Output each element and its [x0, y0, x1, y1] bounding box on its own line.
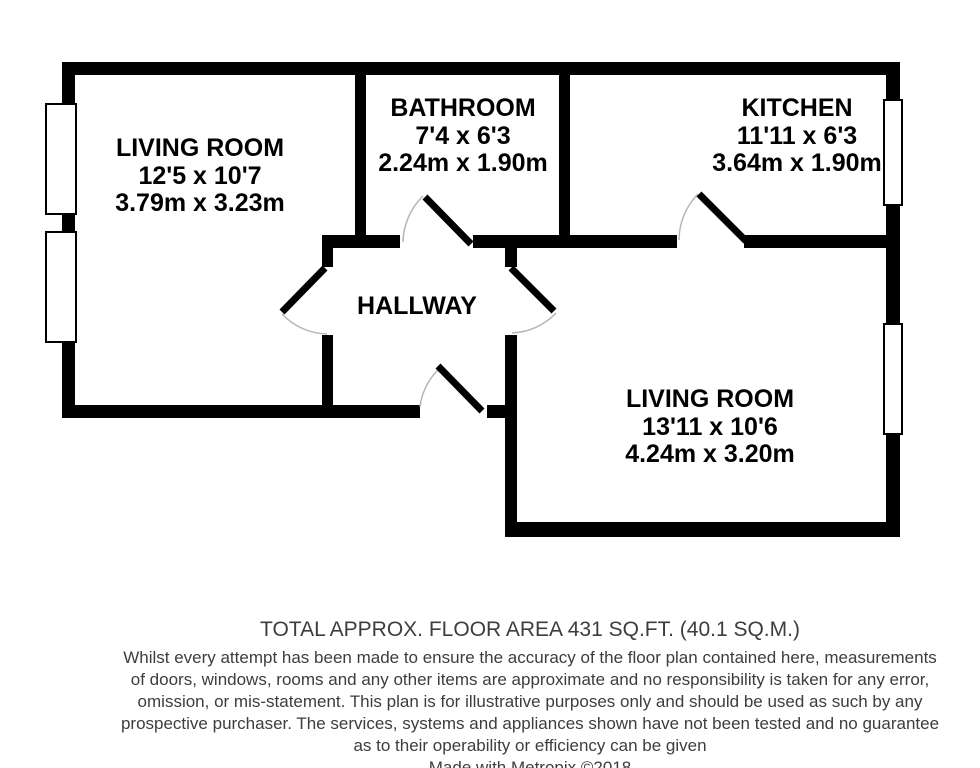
door-leaf-living1 [282, 268, 325, 312]
window-living1-upper [46, 104, 76, 214]
wall-hallway-left-lower [322, 335, 333, 411]
wall-living1-bottom [62, 405, 420, 418]
wall-hallway-left-upper [322, 235, 333, 267]
door-arcs [282, 194, 698, 407]
door-leaf-bathroom [425, 197, 471, 244]
room-dims-imperial: 7'4 x 6'3 [415, 122, 510, 150]
floor-plan-drawing: LIVING ROOM 12'5 x 10'7 3.79m x 3.23m BA… [0, 0, 980, 580]
door-arc-living1 [282, 314, 327, 334]
floor-plan-page: LIVING ROOM 12'5 x 10'7 3.79m x 3.23m BA… [0, 0, 980, 768]
door-arc-bathroom [403, 196, 423, 242]
room-label-living-room-2: LIVING ROOM 13'11 x 10'6 4.24m x 3.20m [625, 385, 795, 468]
room-label-hallway: HALLWAY [357, 292, 477, 320]
door-arc-kitchen [679, 194, 698, 240]
disclaimer: Whilst every attempt has been made to en… [60, 647, 980, 757]
wall-living2-left-stub [505, 247, 517, 267]
wall-divider-living1-bathroom [355, 62, 366, 248]
room-dims-imperial: 12'5 x 10'7 [138, 162, 261, 190]
wall-mid-horizontal-right [744, 235, 900, 248]
window-living2 [884, 324, 902, 434]
disclaimer-line: Whilst every attempt has been made to en… [60, 647, 980, 669]
room-label-living-room-1: LIVING ROOM 12'5 x 10'7 3.79m x 3.23m [115, 134, 285, 217]
room-dims-metric: 2.24m x 1.90m [378, 149, 548, 177]
wall-mid-horizontal-center [473, 235, 677, 248]
room-dims-imperial: 13'11 x 10'6 [642, 413, 778, 441]
wall-divider-bathroom-kitchen [559, 62, 570, 248]
room-name: BATHROOM [390, 94, 535, 122]
door-leaf-kitchen [699, 194, 746, 241]
footer: TOTAL APPROX. FLOOR AREA 431 SQ.FT. (40.… [60, 617, 980, 768]
disclaimer-line: omission, or mis-statement. This plan is… [60, 691, 980, 713]
metropix-credit: Made with Metropix ©2018 [60, 757, 980, 768]
room-dims-imperial: 11'11 x 6'3 [737, 122, 857, 150]
room-name: HALLWAY [357, 292, 477, 320]
wall-exterior-top [62, 62, 900, 75]
wall-living2-left-lower [505, 335, 517, 535]
window-living1-lower [46, 232, 76, 342]
door-arc-entry [420, 368, 440, 407]
room-name: LIVING ROOM [626, 385, 794, 413]
room-dims-metric: 3.79m x 3.23m [115, 189, 285, 217]
disclaimer-line: of doors, windows, rooms and any other i… [60, 669, 980, 691]
room-label-kitchen: KITCHEN 11'11 x 6'3 3.64m x 1.90m [712, 94, 882, 177]
total-floor-area: TOTAL APPROX. FLOOR AREA 431 SQ.FT. (40.… [60, 617, 980, 643]
room-name: LIVING ROOM [116, 134, 284, 162]
wall-living2-bottom [505, 522, 900, 537]
disclaimer-line: as to their operability or efficiency ca… [60, 735, 980, 757]
room-dims-metric: 4.24m x 3.20m [625, 440, 795, 468]
room-name: KITCHEN [741, 94, 852, 122]
door-leaf-living2 [511, 268, 554, 311]
door-leaf-entry [438, 366, 482, 411]
door-arc-living2 [512, 313, 556, 333]
wall-mid-horizontal-left [322, 235, 400, 248]
room-label-bathroom: BATHROOM 7'4 x 6'3 2.24m x 1.90m [378, 94, 548, 177]
disclaimer-line: prospective purchaser. The services, sys… [60, 713, 980, 735]
room-dims-metric: 3.64m x 1.90m [712, 149, 882, 177]
window-kitchen [884, 100, 902, 205]
